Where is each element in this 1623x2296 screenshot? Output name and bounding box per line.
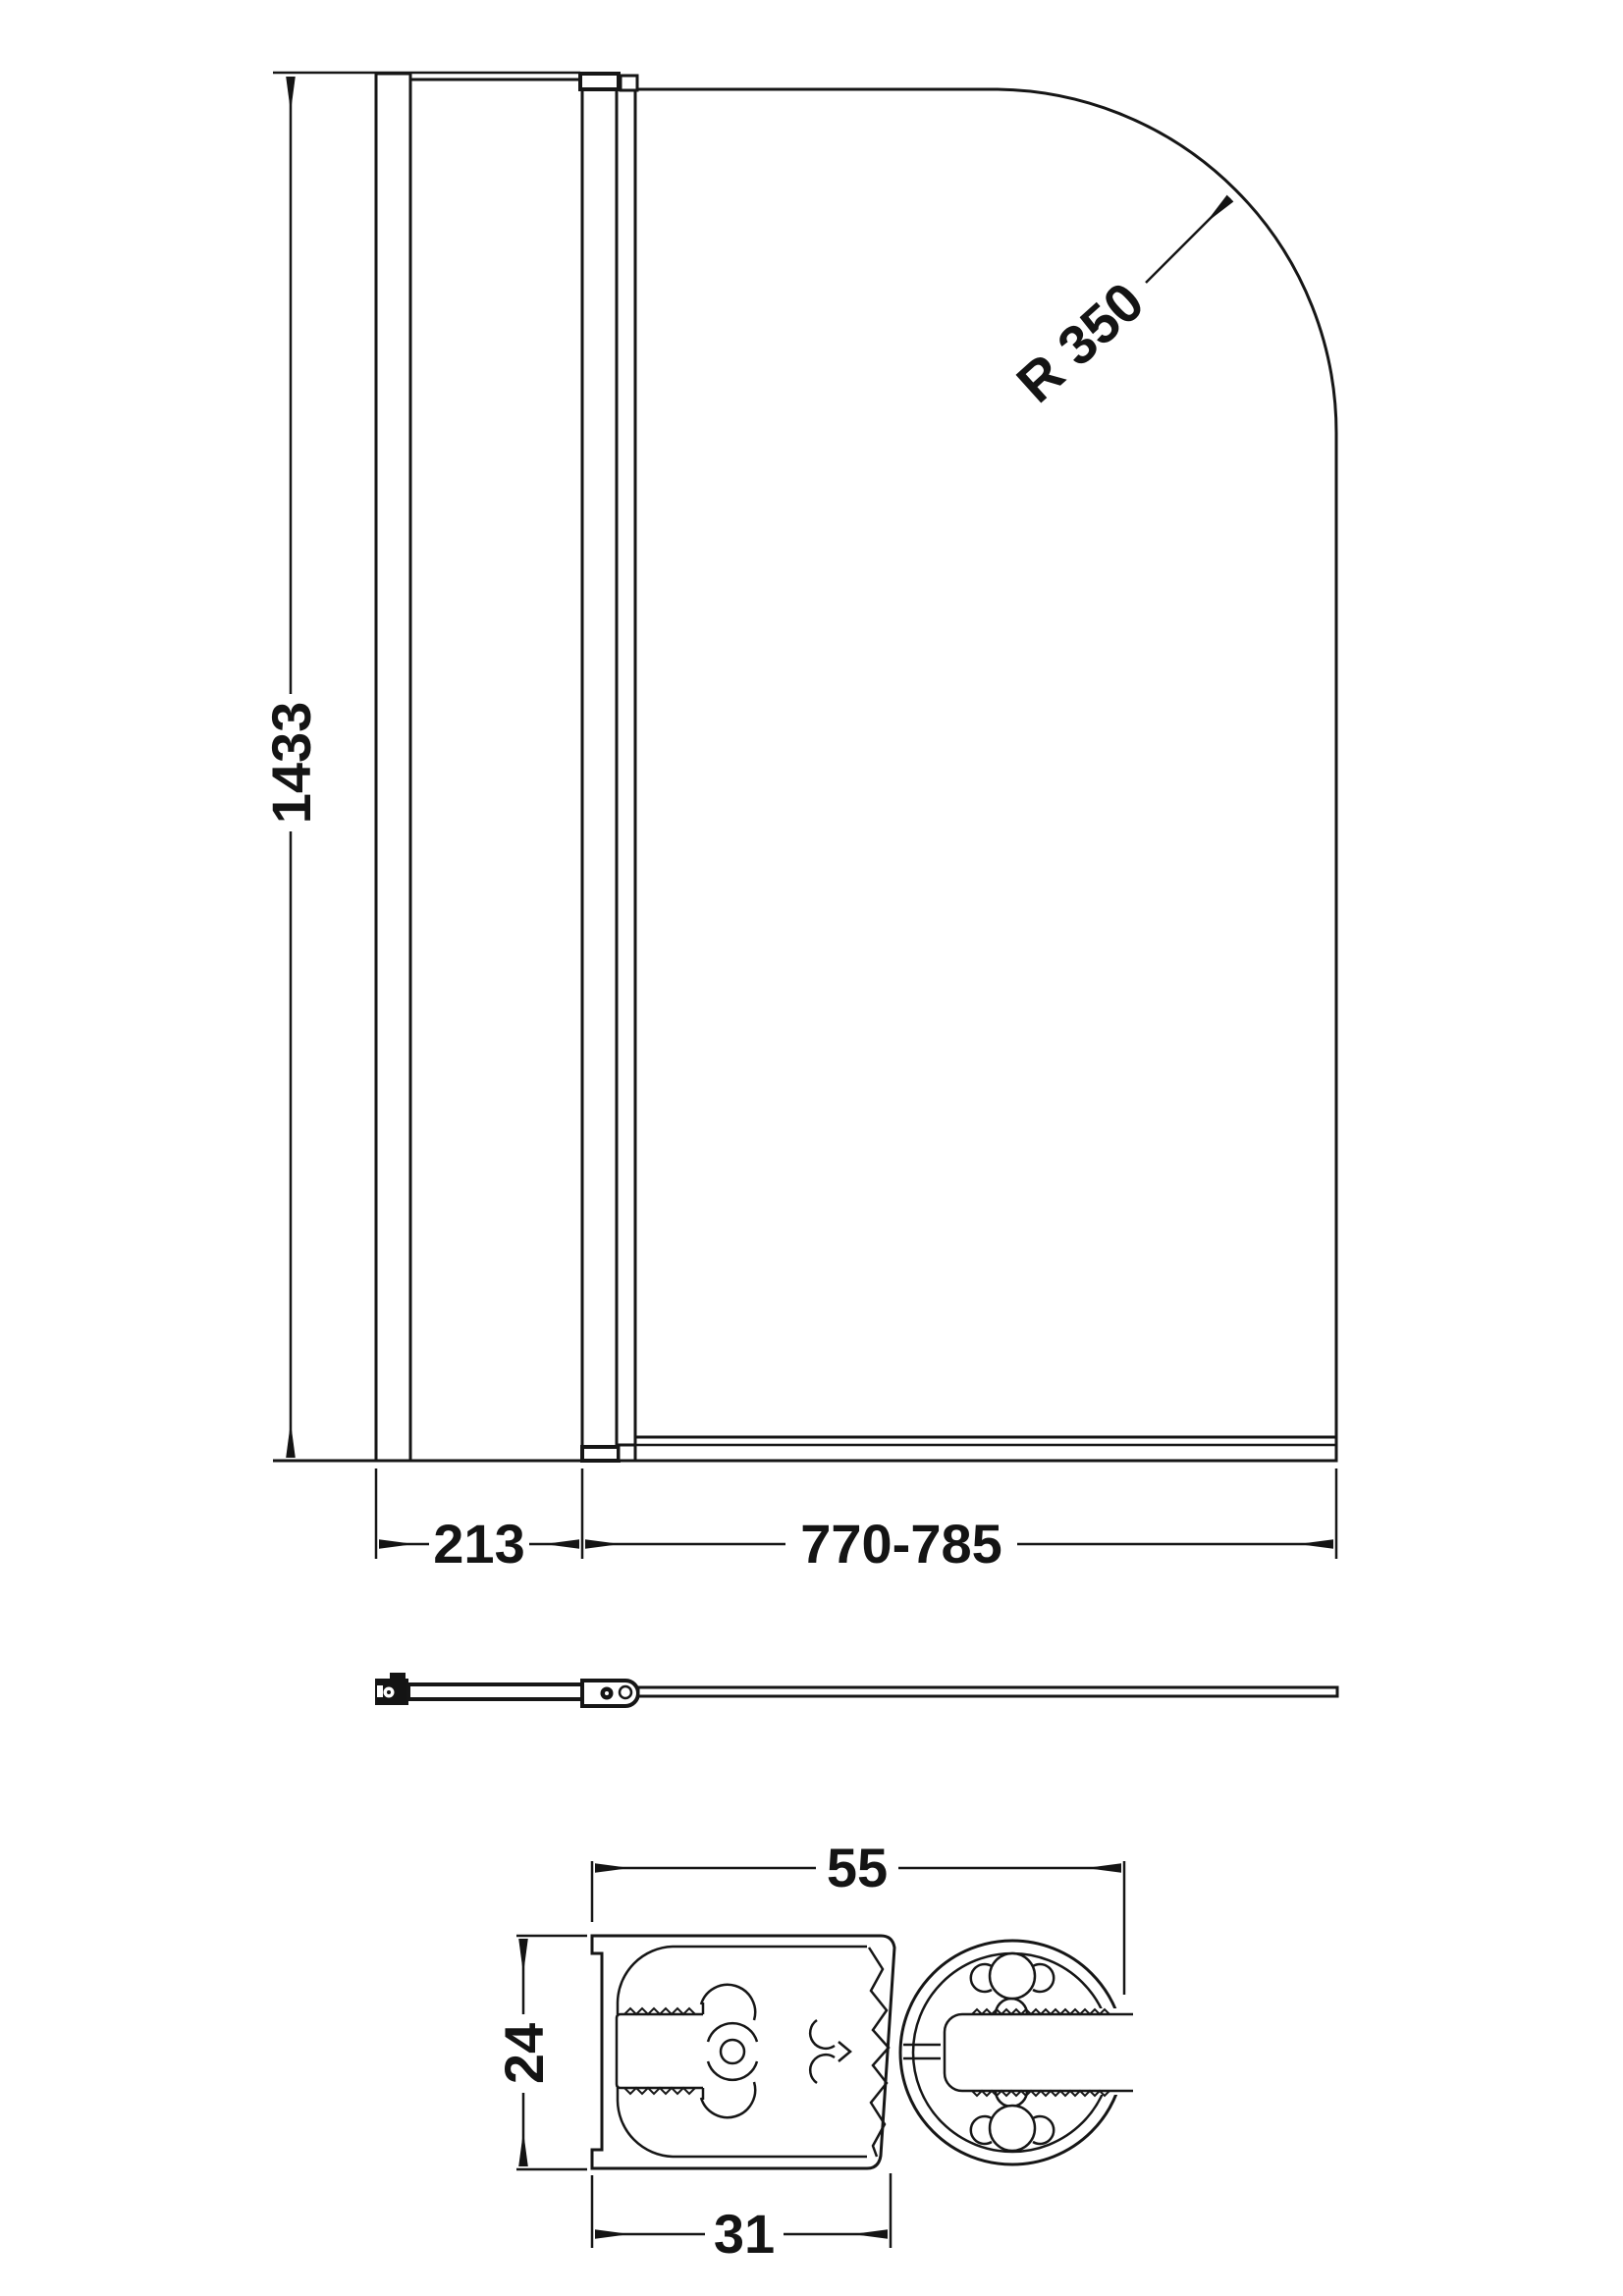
frame-profile-section <box>592 1936 894 2168</box>
dimension-profile-body-width: 31 <box>592 2173 891 2265</box>
support-arm <box>408 1684 582 1699</box>
hinge-cap-bottom-outer <box>582 1447 619 1461</box>
dimension-door-width: 770-785 <box>585 1468 1336 1575</box>
profile-section: 55 24 31 <box>493 1837 1141 2265</box>
dimension-fixed-panel-width: 213 <box>376 1468 582 1575</box>
hinge-knuckle-section <box>900 1941 1141 2164</box>
technical-drawing: 1433 R 350 213 770-785 <box>0 0 1623 2296</box>
hinge-cap-top-outer <box>580 74 619 89</box>
door-panel-glass <box>635 89 1336 1461</box>
wall-bracket <box>375 1673 408 1705</box>
dimension-door-width-label: 770-785 <box>800 1513 1002 1575</box>
dimension-height: 1433 <box>260 77 322 1458</box>
fixed-panel-glass <box>410 80 582 1461</box>
plan-view <box>375 1673 1337 1706</box>
front-elevation <box>273 73 1336 1461</box>
dimension-fixed-panel-width-label: 213 <box>433 1513 524 1575</box>
dimension-profile-body-width-label: 31 <box>714 2203 775 2265</box>
hinge-pivot <box>620 1686 631 1698</box>
dimension-profile-height-label: 24 <box>493 2023 555 2084</box>
glass-panel-edge <box>638 1687 1337 1696</box>
hinge-cap-top-inner <box>621 76 637 90</box>
dimension-height-label: 1433 <box>260 702 322 825</box>
dimension-profile-width-label: 55 <box>827 1837 888 1898</box>
hinge-cap-bottom-inner <box>619 1445 635 1461</box>
wall-channel-profile <box>376 74 410 1461</box>
drawing-sheet: 1433 R 350 213 770-785 <box>0 0 1623 2296</box>
hinge-post <box>582 88 617 1448</box>
dimension-profile-height: 24 <box>493 1936 587 2169</box>
